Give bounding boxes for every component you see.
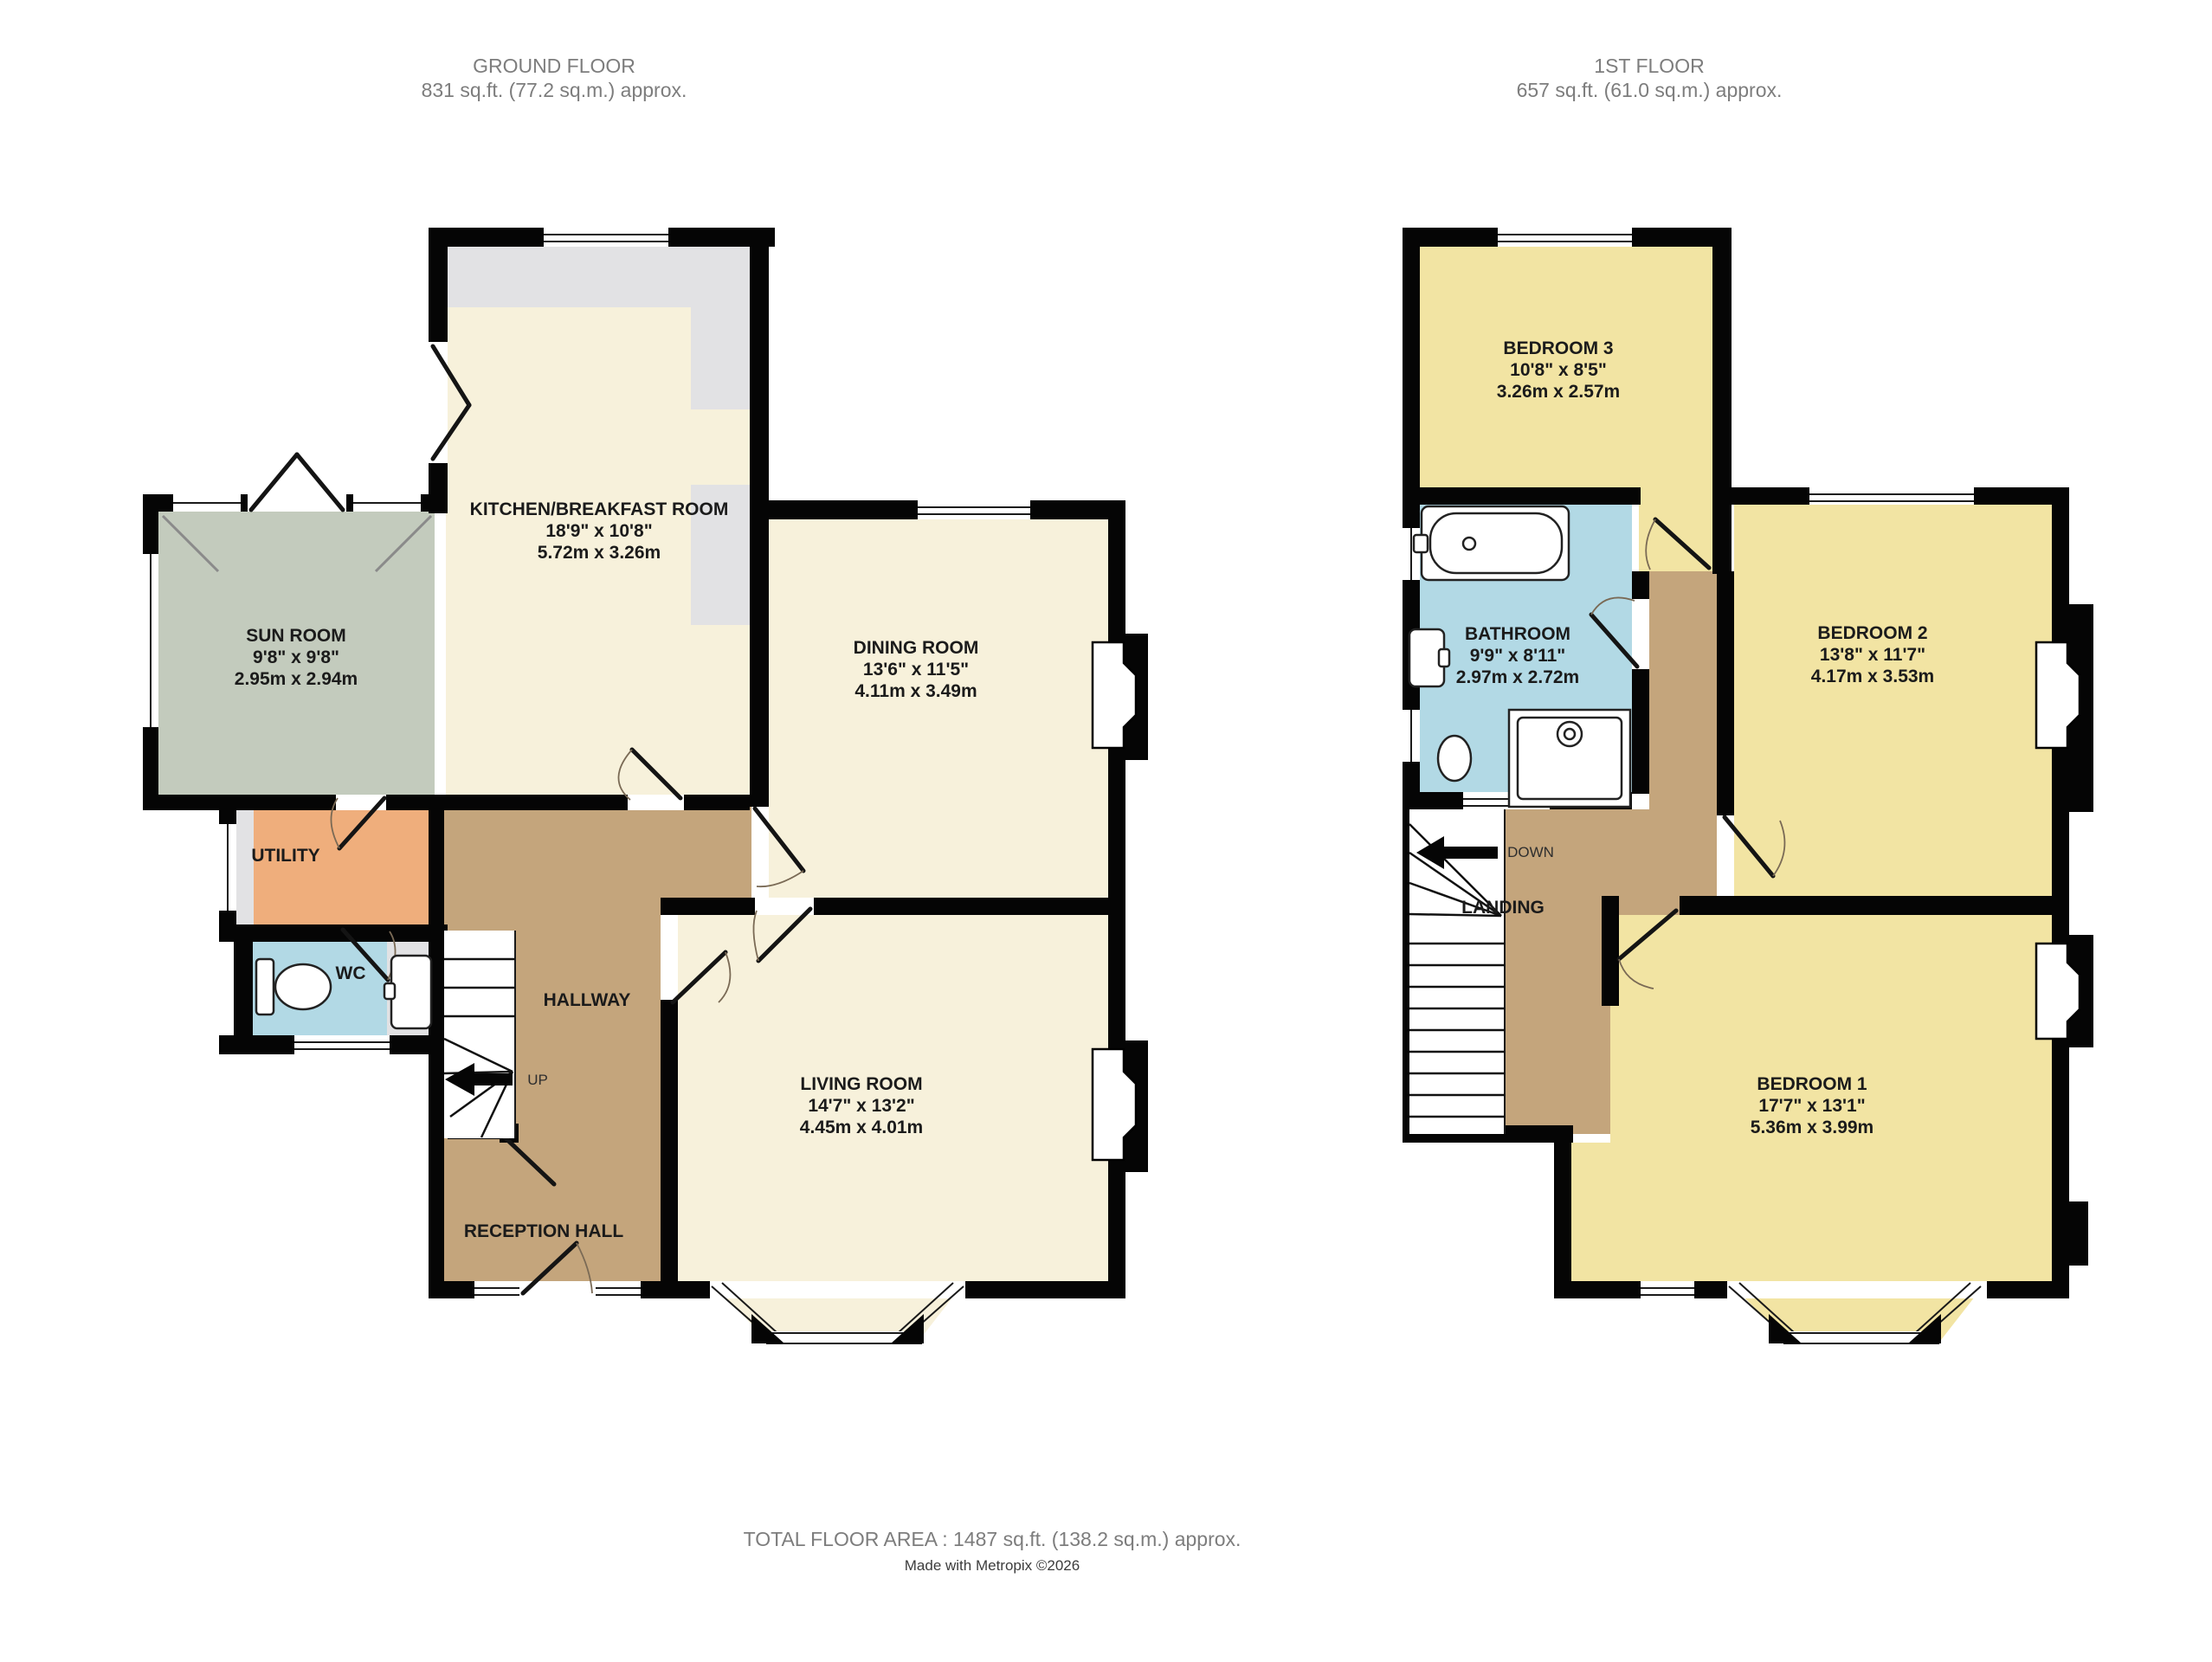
room-dim-imperial: 10'8" x 8'5" [1497, 359, 1620, 381]
reception-hall-label: RECEPTION HALL [464, 1221, 623, 1242]
room-name: KITCHEN/BREAKFAST ROOM [470, 499, 729, 520]
footer: TOTAL FLOOR AREA : 1487 sq.ft. (138.2 sq… [744, 1528, 1241, 1575]
floor-title: 1ST FLOOR [1517, 54, 1783, 78]
room-dim-imperial: 14'7" x 13'2" [800, 1095, 923, 1117]
room-dim-imperial: 18'9" x 10'8" [470, 520, 729, 542]
room-name: DINING ROOM [854, 637, 979, 659]
utility-label: UTILITY [251, 845, 319, 866]
hallway-area [444, 795, 751, 900]
room-dim-imperial: 9'9" x 8'11" [1456, 645, 1579, 667]
room-dim-metric: 2.95m x 2.94m [235, 668, 358, 690]
room-dim-metric: 3.26m x 2.57m [1497, 381, 1620, 403]
stairs-down [1409, 809, 1505, 1134]
metropix-credit: Made with Metropix ©2026 [744, 1557, 1241, 1575]
up-label: UP [527, 1073, 548, 1088]
room-name: BEDROOM 1 [1751, 1073, 1873, 1095]
room-name: BEDROOM 3 [1497, 338, 1620, 359]
room-name: UTILITY [251, 845, 319, 866]
room-dim-metric: 4.17m x 3.53m [1811, 666, 1934, 687]
first-floor-header: 1ST FLOOR 657 sq.ft. (61.0 sq.m.) approx… [1517, 54, 1783, 102]
dining-room-area [769, 519, 1108, 900]
up-arrow [474, 1073, 513, 1085]
bathroom-toilet-icon [1438, 736, 1471, 781]
bedroom2-label: BEDROOM 2 13'8" x 11'7" 4.17m x 3.53m [1811, 622, 1934, 687]
wc-basin-icon [384, 956, 431, 1028]
floor-title: GROUND FLOOR [422, 54, 687, 78]
room-name: BEDROOM 2 [1811, 622, 1934, 644]
living-room-label: LIVING ROOM 14'7" x 13'2" 4.45m x 4.01m [800, 1073, 923, 1138]
room-dim-metric: 5.72m x 3.26m [470, 542, 729, 564]
landing-area [1649, 571, 1717, 815]
bathroom-label: BATHROOM 9'9" x 8'11" 2.97m x 2.72m [1456, 623, 1579, 688]
wc-label: WC [336, 963, 366, 984]
room-dim-metric: 2.97m x 2.72m [1456, 667, 1579, 688]
room-name: HALLWAY [544, 989, 631, 1011]
bedroom2-area [1734, 505, 2052, 896]
down-arrow [1444, 847, 1498, 859]
bathtub-icon [1414, 506, 1569, 580]
floorplan-page: { "ground_floor": { "title": "GROUND FLO… [0, 0, 2212, 1662]
stairs-up [444, 931, 515, 1138]
room-dim-imperial: 17'7" x 13'1" [1751, 1095, 1873, 1117]
shower-tray-icon [1509, 710, 1630, 807]
kitchen-label: KITCHEN/BREAKFAST ROOM 18'9" x 10'8" 5.7… [470, 499, 729, 564]
utility-area [254, 810, 435, 924]
room-dim-metric: 5.36m x 3.99m [1751, 1117, 1873, 1138]
room-dim-imperial: 9'8" x 9'8" [235, 647, 358, 668]
landing-label: LANDING [1461, 897, 1545, 918]
floor-area: 657 sq.ft. (61.0 sq.m.) approx. [1517, 78, 1783, 102]
room-name: WC [336, 963, 366, 984]
floorplan-drawing [0, 0, 2212, 1662]
bedroom3-label: BEDROOM 3 10'8" x 8'5" 3.26m x 2.57m [1497, 338, 1620, 403]
bathroom-basin-icon [1409, 629, 1449, 686]
room-dim-imperial: 13'8" x 11'7" [1811, 644, 1934, 666]
ground-floor-header: GROUND FLOOR 831 sq.ft. (77.2 sq.m.) app… [422, 54, 687, 102]
hallway-label: HALLWAY [544, 989, 631, 1011]
room-name: RECEPTION HALL [464, 1221, 623, 1242]
down-label: DOWN [1507, 845, 1554, 860]
dining-room-label: DINING ROOM 13'6" x 11'5" 4.11m x 3.49m [854, 637, 979, 702]
room-dim-metric: 4.45m x 4.01m [800, 1117, 923, 1138]
total-floor-area: TOTAL FLOOR AREA : 1487 sq.ft. (138.2 sq… [744, 1528, 1241, 1550]
room-name: LANDING [1461, 897, 1545, 918]
sun-room-label: SUN ROOM 9'8" x 9'8" 2.95m x 2.94m [235, 625, 358, 690]
floor-area: 831 sq.ft. (77.2 sq.m.) approx. [422, 78, 687, 102]
room-dim-imperial: 13'6" x 11'5" [854, 659, 979, 680]
room-name: SUN ROOM [235, 625, 358, 647]
room-name: BATHROOM [1456, 623, 1579, 645]
room-dim-metric: 4.11m x 3.49m [854, 680, 979, 702]
room-name: LIVING ROOM [800, 1073, 923, 1095]
bedroom1-label: BEDROOM 1 17'7" x 13'1" 5.36m x 3.99m [1751, 1073, 1873, 1138]
ground-floor-plan [143, 228, 1148, 1345]
